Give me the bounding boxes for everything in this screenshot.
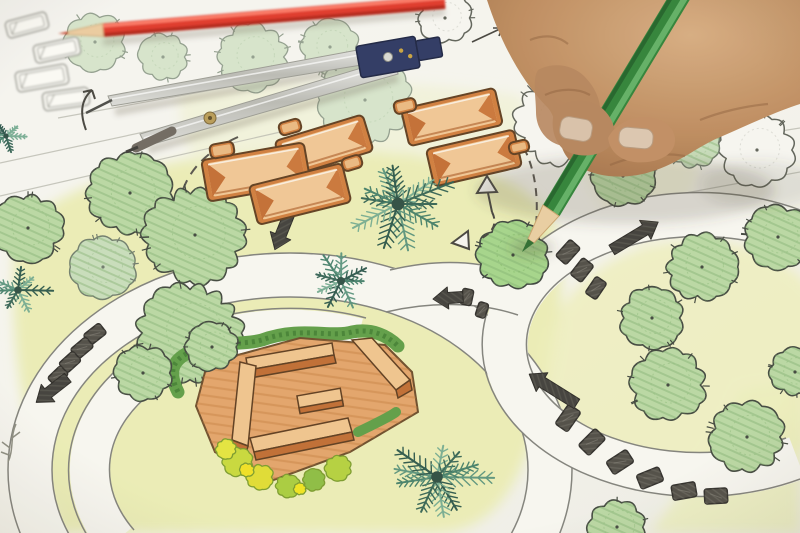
shrub (324, 455, 351, 481)
shrub (240, 463, 254, 477)
shrub (293, 483, 305, 495)
bench-block (209, 141, 235, 159)
stepping-stone (671, 482, 697, 501)
shrub (215, 439, 236, 459)
thumbnail (618, 127, 654, 150)
stepping-stone (704, 488, 728, 504)
photo-landscape-plan (0, 0, 800, 533)
